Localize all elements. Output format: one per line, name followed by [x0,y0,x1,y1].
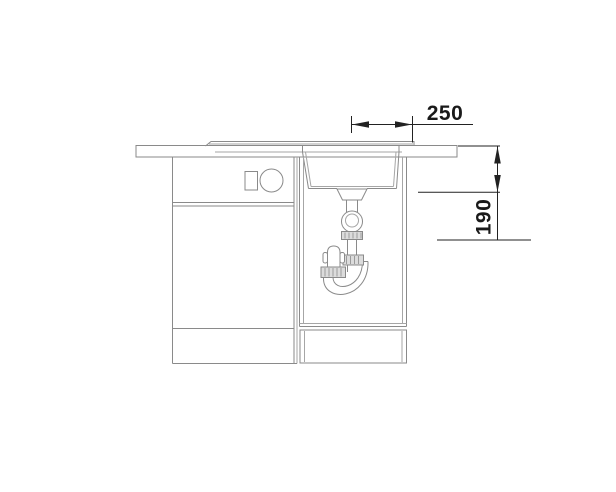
drain-flange [337,189,367,200]
outlet-stub [323,246,345,267]
worktop-slab [136,146,457,158]
dimension-190: 190 [418,146,531,240]
dimension-250: 250 [352,102,474,143]
dim-250-arrow-right [395,121,412,128]
drain-trap-assembly [321,189,368,294]
left-base-cabinet [173,157,298,364]
drawer-front [300,330,407,363]
control-switch [245,172,258,191]
compression-nut-middle [343,255,364,265]
sink-installation-diagram: 250 190 [0,0,616,492]
dim-250-arrow-left [352,121,369,128]
compression-nut-upper [342,232,363,240]
bottom-drawer [300,330,407,363]
worktop [136,146,457,158]
diagram-canvas: 250 190 [0,0,616,492]
stub-body [328,246,341,267]
dim-190-arrow-up [494,147,501,164]
dim-190-label: 190 [473,199,496,236]
stub-ear-left [323,253,328,264]
cabinet-control-panel [245,169,283,192]
dim-190-arrow-down [494,175,501,192]
dim-250-label: 250 [427,102,464,125]
stub-ear-right [340,253,345,264]
compression-nut-lower [321,267,346,278]
sink-rim [206,142,415,153]
control-knob [260,169,283,192]
